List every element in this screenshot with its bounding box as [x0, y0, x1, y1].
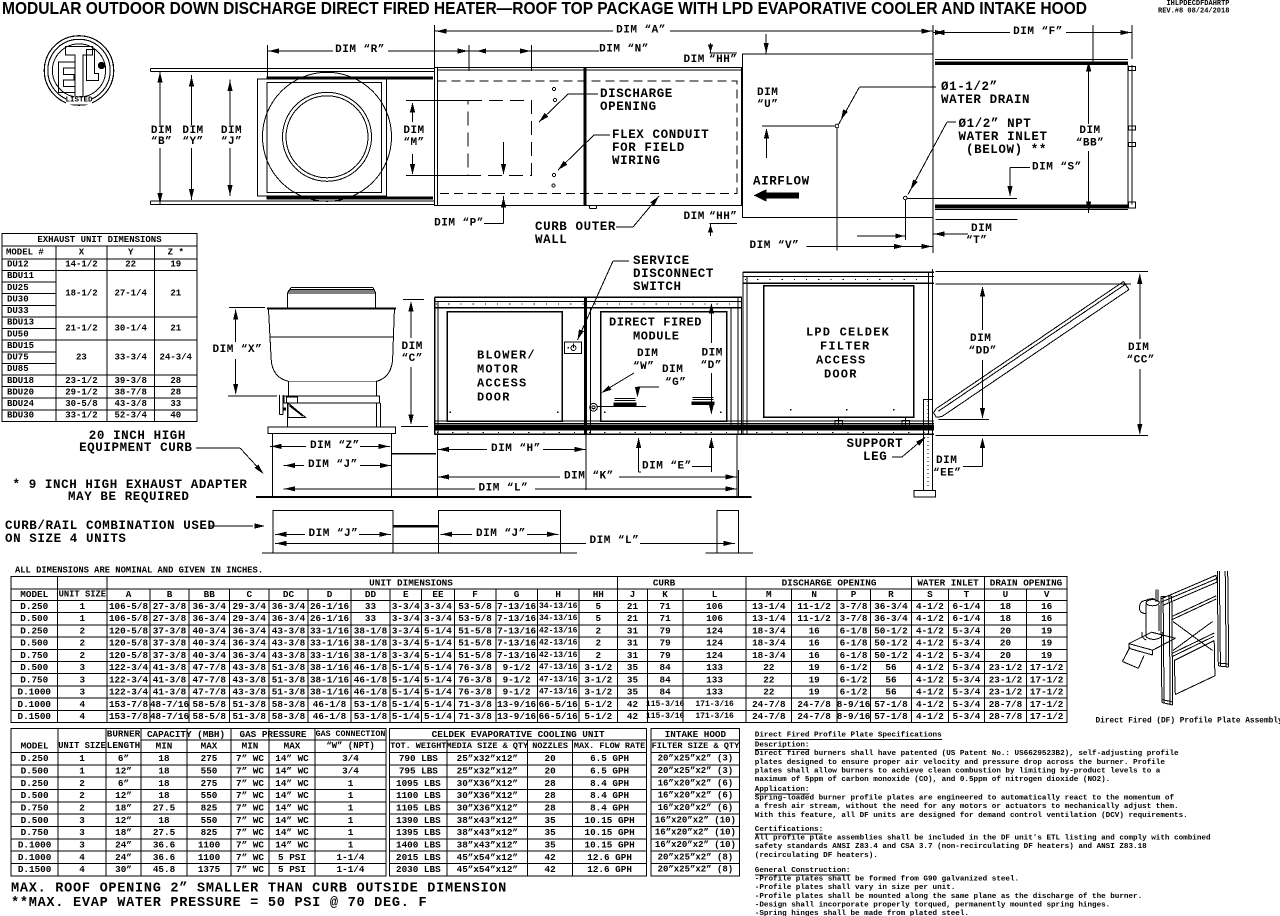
- svg-text:153-7/8: 153-7/8: [109, 711, 148, 722]
- svg-text:“W” (NPT): “W” (NPT): [326, 741, 375, 751]
- svg-text:“Y”: “Y”: [182, 136, 203, 148]
- svg-text:42: 42: [545, 852, 557, 863]
- svg-text:23-1/2: 23-1/2: [989, 662, 1023, 673]
- svg-text:30-5/8: 30-5/8: [65, 399, 97, 409]
- svg-text:1400 LBS: 1400 LBS: [396, 840, 441, 851]
- svg-text:17-1/2: 17-1/2: [1030, 711, 1064, 722]
- svg-text:53-5/8: 53-5/8: [458, 601, 492, 612]
- svg-text:3-7/8: 3-7/8: [840, 613, 868, 624]
- svg-text:4-1/2: 4-1/2: [916, 625, 944, 636]
- svg-text:56: 56: [885, 662, 897, 673]
- svg-text:4-1/2: 4-1/2: [916, 650, 944, 661]
- svg-text:UNIT SIZE: UNIT SIZE: [59, 590, 107, 600]
- svg-text:171-3/16: 171-3/16: [695, 712, 734, 721]
- svg-text:4-1/2: 4-1/2: [916, 687, 944, 698]
- svg-text:MEDIA SIZE & QTY: MEDIA SIZE & QTY: [446, 741, 529, 751]
- svg-text:38-7/8: 38-7/8: [114, 387, 146, 397]
- svg-text:550: 550: [201, 765, 218, 776]
- svg-text:18-3/4: 18-3/4: [752, 638, 786, 649]
- svg-text:27.5: 27.5: [153, 827, 176, 838]
- svg-text:1: 1: [79, 765, 85, 776]
- svg-text:EE: EE: [432, 589, 444, 600]
- svg-text:17-1/2: 17-1/2: [1030, 687, 1064, 698]
- svg-text:47-7/8: 47-7/8: [193, 674, 227, 685]
- svg-text:4: 4: [80, 711, 86, 722]
- svg-text:47-13/16: 47-13/16: [539, 688, 578, 697]
- svg-text:12”: 12”: [115, 815, 132, 826]
- svg-text:36-3/4: 36-3/4: [874, 613, 908, 624]
- svg-text:51-3/8: 51-3/8: [233, 711, 267, 722]
- svg-text:33-1/2: 33-1/2: [65, 411, 97, 421]
- svg-text:8-9/16: 8-9/16: [837, 699, 871, 710]
- svg-text:41-3/8: 41-3/8: [153, 674, 187, 685]
- svg-text:1375: 1375: [198, 864, 221, 875]
- svg-text:“T”: “T”: [966, 235, 987, 247]
- svg-text:31: 31: [627, 650, 639, 661]
- svg-text:14” WC: 14” WC: [275, 827, 309, 838]
- svg-text:CURB/RAIL COMBINATION USED: CURB/RAIL COMBINATION USED: [5, 519, 216, 533]
- svg-text:DD: DD: [365, 589, 377, 600]
- svg-text:MAY BE REQUIRED: MAY BE REQUIRED: [68, 490, 190, 504]
- svg-text:10.15 GPH: 10.15 GPH: [584, 815, 634, 826]
- svg-text:53-1/8: 53-1/8: [354, 699, 388, 710]
- svg-text:5-1/4: 5-1/4: [424, 674, 452, 685]
- svg-text:3: 3: [80, 662, 86, 673]
- svg-text:14” WC: 14” WC: [275, 753, 309, 764]
- svg-text:2: 2: [596, 650, 602, 661]
- svg-text:106: 106: [706, 613, 723, 624]
- svg-text:CELDEK EVAPORATIVE COOLING UNI: CELDEK EVAPORATIVE COOLING UNIT: [432, 729, 605, 740]
- svg-text:Ø1-1/2”: Ø1-1/2”: [941, 80, 998, 94]
- svg-text:LEG: LEG: [863, 450, 887, 464]
- svg-text:6-1/2: 6-1/2: [840, 662, 868, 673]
- svg-text:**MAX. EVAP WATER PRESSURE = 5: **MAX. EVAP WATER PRESSURE = 50 PSI @ 70…: [11, 896, 427, 911]
- svg-text:27.5: 27.5: [153, 802, 176, 813]
- svg-text:5-3/4: 5-3/4: [952, 650, 980, 661]
- svg-text:58-5/8: 58-5/8: [193, 699, 227, 710]
- svg-text:BDU20: BDU20: [7, 387, 34, 397]
- svg-text:36.6: 36.6: [153, 852, 176, 863]
- svg-text:3-3/4: 3-3/4: [424, 601, 452, 612]
- svg-text:27-3/8: 27-3/8: [153, 601, 187, 612]
- svg-text:1095 LBS: 1095 LBS: [396, 778, 441, 789]
- svg-text:BDU11: BDU11: [7, 271, 35, 281]
- svg-text:4: 4: [80, 699, 86, 710]
- svg-text:UNIT DIMENSIONS: UNIT DIMENSIONS: [369, 577, 453, 588]
- svg-text:5-1/4: 5-1/4: [392, 662, 420, 673]
- svg-text:3: 3: [80, 674, 86, 685]
- svg-text:5-1/4: 5-1/4: [424, 662, 452, 673]
- svg-text:DIM “A”: DIM “A”: [616, 25, 666, 37]
- svg-text:DC: DC: [283, 589, 295, 600]
- svg-text:DIM “V”: DIM “V”: [750, 240, 800, 252]
- svg-text:D.1500: D.1500: [18, 864, 52, 875]
- svg-text:35: 35: [545, 840, 557, 851]
- svg-text:50-1/2: 50-1/2: [874, 638, 908, 649]
- svg-text:14” WC: 14” WC: [275, 815, 309, 826]
- svg-text:OPENING: OPENING: [600, 100, 657, 114]
- svg-text:120-5/8: 120-5/8: [109, 650, 148, 661]
- svg-text:FOR FIELD: FOR FIELD: [612, 141, 685, 155]
- svg-text:5-1/4: 5-1/4: [392, 687, 420, 698]
- svg-text:38-1/8: 38-1/8: [354, 625, 388, 636]
- svg-text:Certifications:: Certifications:: [755, 826, 823, 834]
- svg-text:43-3/8: 43-3/8: [272, 650, 306, 661]
- svg-text:790 LBS: 790 LBS: [399, 753, 438, 764]
- svg-text:DIM “R”: DIM “R”: [335, 44, 385, 56]
- svg-text:8.4 GPH: 8.4 GPH: [590, 790, 629, 801]
- svg-text:Y: Y: [128, 247, 134, 257]
- svg-text:H: H: [555, 589, 561, 600]
- svg-text:4-1/2: 4-1/2: [916, 662, 944, 673]
- svg-text:FILTER: FILTER: [820, 340, 870, 354]
- svg-text:5: 5: [596, 613, 602, 624]
- svg-text:BDU24: BDU24: [7, 399, 35, 409]
- svg-text:3-3/4: 3-3/4: [392, 625, 420, 636]
- svg-text:79: 79: [660, 625, 672, 636]
- svg-text:C: C: [246, 589, 252, 600]
- svg-text:18-1/2: 18-1/2: [65, 289, 97, 299]
- svg-text:MAX. FLOW RATE: MAX. FLOW RATE: [574, 741, 645, 751]
- svg-text:DIM: DIM: [971, 223, 992, 235]
- svg-text:General Construction:: General Construction:: [755, 867, 851, 875]
- svg-text:35: 35: [627, 662, 639, 673]
- svg-text:24”: 24”: [115, 852, 132, 863]
- svg-text:56: 56: [885, 674, 897, 685]
- svg-text:16: 16: [1041, 601, 1053, 612]
- svg-text:2: 2: [79, 790, 85, 801]
- svg-text:12.6 GPH: 12.6 GPH: [587, 852, 632, 863]
- svg-text:11-1/2: 11-1/2: [797, 601, 831, 612]
- svg-text:36-3/4: 36-3/4: [193, 601, 227, 612]
- svg-text:36-3/4: 36-3/4: [874, 601, 908, 612]
- svg-text:“BB”: “BB”: [1076, 138, 1104, 150]
- svg-text:BURNER: BURNER: [107, 728, 141, 739]
- svg-text:17-1/2: 17-1/2: [1030, 662, 1064, 673]
- svg-text:76-3/8: 76-3/8: [458, 687, 492, 698]
- svg-text:1: 1: [79, 753, 85, 764]
- svg-text:20: 20: [1000, 625, 1012, 636]
- svg-text:38-1/8: 38-1/8: [354, 638, 388, 649]
- svg-text:DIM “N”: DIM “N”: [599, 44, 649, 56]
- svg-text:43-3/8: 43-3/8: [272, 625, 306, 636]
- svg-text:Direct fired burners shall hav: Direct fired burners shall have patented…: [755, 750, 1179, 758]
- svg-text:58-5/8: 58-5/8: [193, 711, 227, 722]
- svg-text:DIM: DIM: [757, 87, 778, 99]
- svg-text:38”x43”x12”: 38”x43”x12”: [457, 827, 518, 838]
- svg-text:M: M: [766, 589, 772, 600]
- svg-text:29-3/4: 29-3/4: [233, 601, 267, 612]
- svg-text:12.6 GPH: 12.6 GPH: [587, 864, 632, 875]
- svg-text:2: 2: [596, 638, 602, 649]
- svg-text:5-3/4: 5-3/4: [952, 687, 980, 698]
- svg-text:12”: 12”: [115, 790, 132, 801]
- svg-text:V: V: [1044, 589, 1050, 600]
- svg-text:25”x32”x12”: 25”x32”x12”: [457, 753, 518, 764]
- svg-text:30”: 30”: [115, 864, 132, 875]
- svg-text:51-5/8: 51-5/8: [458, 625, 492, 636]
- svg-text:DU25: DU25: [7, 283, 29, 293]
- svg-text:36-3/4: 36-3/4: [193, 613, 227, 624]
- svg-text:18-3/4: 18-3/4: [752, 625, 786, 636]
- svg-text:6.5 GPH: 6.5 GPH: [590, 765, 629, 776]
- svg-text:46-1/8: 46-1/8: [354, 674, 388, 685]
- svg-text:LISTED: LISTED: [65, 97, 93, 105]
- svg-text:MOTOR: MOTOR: [477, 363, 519, 377]
- svg-text:Direct Fired (DF) Profile Plat: Direct Fired (DF) Profile Plate Assembly: [1096, 718, 1280, 726]
- svg-text:35: 35: [545, 827, 557, 838]
- svg-text:“CC”: “CC”: [1127, 355, 1155, 367]
- svg-text:5-3/4: 5-3/4: [952, 662, 980, 673]
- svg-text:ON SIZE 4 UNITS: ON SIZE 4 UNITS: [5, 532, 127, 546]
- svg-text:DISCONNECT: DISCONNECT: [633, 267, 714, 281]
- svg-text:12”: 12”: [115, 765, 132, 776]
- svg-text:71: 71: [660, 613, 672, 624]
- svg-text:7” WC: 7” WC: [236, 864, 264, 875]
- svg-text:33: 33: [170, 399, 181, 409]
- svg-text:34-13/16: 34-13/16: [539, 614, 578, 623]
- svg-text:47-7/8: 47-7/8: [193, 662, 227, 673]
- svg-text:DISCHARGE OPENING: DISCHARGE OPENING: [782, 577, 877, 588]
- svg-text:28: 28: [545, 802, 557, 813]
- svg-text:U: U: [1003, 589, 1009, 600]
- svg-text:36-3/4: 36-3/4: [233, 625, 267, 636]
- svg-text:D.750: D.750: [21, 802, 49, 813]
- svg-text:Direct Fired Profile Plate Spe: Direct Fired Profile Plate Specification…: [755, 732, 942, 740]
- svg-text:122-3/4: 122-3/4: [109, 674, 148, 685]
- svg-text:5-3/4: 5-3/4: [952, 638, 980, 649]
- svg-text:FLEX CONDUIT: FLEX CONDUIT: [612, 128, 709, 142]
- svg-text:22: 22: [763, 687, 775, 698]
- svg-text:(BELOW) **: (BELOW) **: [966, 143, 1047, 157]
- svg-text:19: 19: [1041, 625, 1053, 636]
- svg-text:plates designed to ensure prop: plates designed to ensure proper air vel…: [755, 759, 1166, 767]
- svg-text:28: 28: [170, 387, 181, 397]
- svg-text:LENGTH: LENGTH: [107, 740, 140, 751]
- svg-text:3-3/4: 3-3/4: [392, 613, 420, 624]
- svg-text:N: N: [811, 589, 817, 600]
- svg-text:36-3/4: 36-3/4: [233, 650, 267, 661]
- svg-text:58-3/8: 58-3/8: [272, 711, 306, 722]
- svg-text:10.15 GPH: 10.15 GPH: [584, 840, 634, 851]
- svg-text:6-1/8: 6-1/8: [840, 638, 868, 649]
- svg-text:33: 33: [365, 601, 377, 612]
- svg-text:5 PSI: 5 PSI: [278, 852, 306, 863]
- svg-text:EQUIPMENT CURB: EQUIPMENT CURB: [79, 441, 192, 455]
- svg-text:21: 21: [627, 601, 639, 612]
- svg-text:ALL DIMENSIONS ARE NOMINAL AND: ALL DIMENSIONS ARE NOMINAL AND GIVEN IN …: [15, 566, 263, 576]
- svg-text:3-1/2: 3-1/2: [584, 674, 612, 685]
- svg-text:9-1/2: 9-1/2: [503, 687, 531, 698]
- svg-text:14” WC: 14” WC: [275, 802, 309, 813]
- svg-text:All profile plate assemblies s: All profile plate assemblies shall be in…: [755, 835, 1211, 843]
- svg-text:20: 20: [1000, 638, 1012, 649]
- svg-text:5: 5: [596, 601, 602, 612]
- svg-text:16”x20”x2” (10): 16”x20”x2” (10): [655, 840, 736, 850]
- svg-text:3: 3: [79, 840, 85, 851]
- svg-text:CAPACITY (MBH): CAPACITY (MBH): [147, 729, 225, 740]
- svg-text:DIM “E”: DIM “E”: [642, 461, 692, 473]
- svg-text:30”X36”X12”: 30”X36”X12”: [457, 790, 518, 801]
- svg-text:EXHAUST UNIT DIMENSIONS: EXHAUST UNIT DIMENSIONS: [37, 235, 162, 245]
- svg-text:21: 21: [627, 613, 639, 624]
- svg-text:DIM: DIM: [1128, 342, 1149, 354]
- svg-text:8.4 GPH: 8.4 GPH: [590, 802, 629, 813]
- svg-text:47-13/16: 47-13/16: [539, 663, 578, 672]
- svg-text:DIM “Z”: DIM “Z”: [310, 440, 360, 452]
- svg-text:38”x43”x12”: 38”x43”x12”: [457, 815, 518, 826]
- svg-text:38-1/16: 38-1/16: [310, 662, 349, 673]
- svg-text:7” WC: 7” WC: [236, 840, 264, 851]
- svg-text:T: T: [964, 589, 970, 600]
- svg-text:36-3/4: 36-3/4: [272, 613, 306, 624]
- svg-text:GAS PRESSURE: GAS PRESSURE: [240, 729, 307, 740]
- svg-text:46-1/8: 46-1/8: [313, 711, 347, 722]
- svg-text:2: 2: [596, 625, 602, 636]
- svg-text:E: E: [403, 589, 409, 600]
- svg-text:-Profile plates shall be mount: -Profile plates shall be mounted along t…: [755, 893, 1142, 901]
- svg-text:19: 19: [809, 687, 821, 698]
- svg-text:42-13/16: 42-13/16: [539, 639, 578, 648]
- svg-text:3-1/2: 3-1/2: [584, 687, 612, 698]
- svg-text:42: 42: [627, 711, 639, 722]
- svg-text:Ø1/2” NPT: Ø1/2” NPT: [959, 117, 1032, 131]
- svg-text:24-3/4: 24-3/4: [160, 353, 193, 363]
- svg-text:42-13/16: 42-13/16: [539, 651, 578, 660]
- svg-text:36-3/4: 36-3/4: [233, 638, 267, 649]
- svg-text:40-3/4: 40-3/4: [193, 650, 227, 661]
- svg-text:41-3/8: 41-3/8: [153, 662, 187, 673]
- svg-text:33-3/4: 33-3/4: [114, 353, 147, 363]
- svg-text:1-1/4: 1-1/4: [337, 852, 365, 863]
- svg-text:REV.#8 08/24/2018: REV.#8 08/24/2018: [1158, 8, 1229, 16]
- svg-text:S: S: [927, 589, 933, 600]
- svg-text:DIM: DIM: [936, 455, 957, 467]
- svg-text:51-3/8: 51-3/8: [233, 699, 267, 710]
- svg-text:21-1/2: 21-1/2: [65, 324, 97, 334]
- svg-text:Spring-loaded burner profile p: Spring-loaded burner profile plates are …: [755, 795, 1175, 803]
- svg-text:BDU30: BDU30: [7, 411, 34, 421]
- svg-text:D.250: D.250: [20, 625, 48, 636]
- svg-text:18”: 18”: [115, 802, 132, 813]
- svg-text:D.500: D.500: [21, 790, 49, 801]
- svg-text:3-3/4: 3-3/4: [424, 613, 452, 624]
- svg-text:43-3/8: 43-3/8: [233, 662, 267, 673]
- svg-text:DIM “K”: DIM “K”: [564, 471, 614, 483]
- svg-text:LPD CELDEK: LPD CELDEK: [806, 326, 890, 340]
- svg-text:23-1/2: 23-1/2: [989, 687, 1023, 698]
- svg-text:20”x25”x2” (3): 20”x25”x2” (3): [658, 766, 734, 776]
- svg-text:30”X36”X12”: 30”X36”X12”: [457, 778, 518, 789]
- svg-text:“D”: “D”: [701, 360, 722, 372]
- svg-text:795 LBS: 795 LBS: [399, 765, 438, 776]
- svg-text:50-1/2: 50-1/2: [874, 650, 908, 661]
- svg-text:84: 84: [660, 662, 672, 673]
- svg-text:5-1/4: 5-1/4: [392, 711, 420, 722]
- svg-text:71: 71: [660, 601, 672, 612]
- svg-text:“HH”: “HH”: [709, 54, 737, 66]
- svg-text:133: 133: [706, 662, 723, 673]
- svg-text:2: 2: [79, 778, 85, 789]
- svg-text:DIM: DIM: [403, 125, 424, 137]
- svg-text:19: 19: [809, 662, 821, 673]
- svg-text:28-7/8: 28-7/8: [989, 699, 1023, 710]
- svg-text:2030 LBS: 2030 LBS: [396, 864, 441, 875]
- svg-text:14” WC: 14” WC: [275, 778, 309, 789]
- svg-text:46-1/8: 46-1/8: [313, 699, 347, 710]
- svg-text:DU12: DU12: [7, 260, 29, 270]
- svg-text:550: 550: [201, 815, 218, 826]
- svg-text:825: 825: [201, 827, 218, 838]
- svg-text:19: 19: [809, 674, 821, 685]
- svg-text:“G”: “G”: [665, 377, 686, 389]
- svg-text:DU30: DU30: [7, 294, 29, 304]
- svg-text:DIM “J”: DIM “J”: [308, 459, 358, 471]
- svg-text:38”x43”x12”: 38”x43”x12”: [457, 840, 518, 851]
- svg-text:34-13/16: 34-13/16: [539, 602, 578, 611]
- svg-text:18: 18: [1000, 613, 1012, 624]
- svg-text:MODULE: MODULE: [633, 330, 680, 344]
- svg-text:1100 LBS: 1100 LBS: [396, 790, 441, 801]
- svg-text:D.750: D.750: [20, 650, 48, 661]
- svg-text:NOZZLES: NOZZLES: [532, 741, 568, 751]
- svg-text:P: P: [851, 589, 857, 600]
- svg-text:2: 2: [80, 638, 86, 649]
- svg-text:43-3/8: 43-3/8: [233, 674, 267, 685]
- svg-text:52-3/4: 52-3/4: [114, 411, 147, 421]
- svg-text:20: 20: [545, 753, 557, 764]
- svg-text:21: 21: [170, 324, 181, 334]
- svg-text:41-3/8: 41-3/8: [153, 687, 187, 698]
- svg-text:4-1/2: 4-1/2: [916, 601, 944, 612]
- svg-text:33-1/16: 33-1/16: [310, 638, 349, 649]
- svg-text:DIM “J”: DIM “J”: [476, 528, 526, 540]
- svg-text:37-3/8: 37-3/8: [153, 625, 187, 636]
- svg-text:3-7/8: 3-7/8: [840, 601, 868, 612]
- svg-text:SWITCH: SWITCH: [633, 280, 682, 294]
- svg-text:A: A: [126, 589, 132, 600]
- svg-text:53-5/8: 53-5/8: [458, 613, 492, 624]
- svg-text:1100: 1100: [198, 840, 221, 851]
- svg-text:G: G: [514, 589, 520, 600]
- svg-text:36-3/4: 36-3/4: [272, 601, 306, 612]
- svg-text:B: B: [167, 589, 173, 600]
- svg-text:51-3/8: 51-3/8: [272, 674, 306, 685]
- svg-text:1: 1: [80, 601, 86, 612]
- svg-text:45”x54”x12”: 45”x54”x12”: [457, 864, 518, 875]
- svg-text:22: 22: [763, 662, 775, 673]
- svg-text:AIRFLOW: AIRFLOW: [753, 175, 810, 189]
- svg-text:ACCESS: ACCESS: [477, 377, 527, 391]
- svg-text:7” WC: 7” WC: [236, 827, 264, 838]
- svg-text:6-1/8: 6-1/8: [840, 625, 868, 636]
- svg-text:17-1/2: 17-1/2: [1030, 699, 1064, 710]
- svg-text:HH: HH: [593, 589, 604, 600]
- svg-text:DOOR: DOOR: [477, 391, 511, 405]
- svg-text:13-9/16: 13-9/16: [497, 699, 536, 710]
- svg-text:plates shall allow burners to: plates shall allow burners to achieve cl…: [755, 767, 1161, 775]
- svg-text:24-7/8: 24-7/8: [797, 699, 831, 710]
- svg-text:7” WC: 7” WC: [236, 815, 264, 826]
- svg-text:MODEL: MODEL: [20, 589, 48, 600]
- svg-text:76-3/8: 76-3/8: [458, 674, 492, 685]
- svg-text:31: 31: [627, 638, 639, 649]
- svg-text:MODULAR OUTDOOR DOWN DISCHARGE: MODULAR OUTDOOR DOWN DISCHARGE DIRECT FI…: [2, 0, 1087, 18]
- svg-text:171-3/16: 171-3/16: [695, 700, 734, 709]
- svg-text:9-1/2: 9-1/2: [503, 674, 531, 685]
- svg-text:37-3/8: 37-3/8: [153, 650, 187, 661]
- svg-text:CURB: CURB: [653, 577, 676, 588]
